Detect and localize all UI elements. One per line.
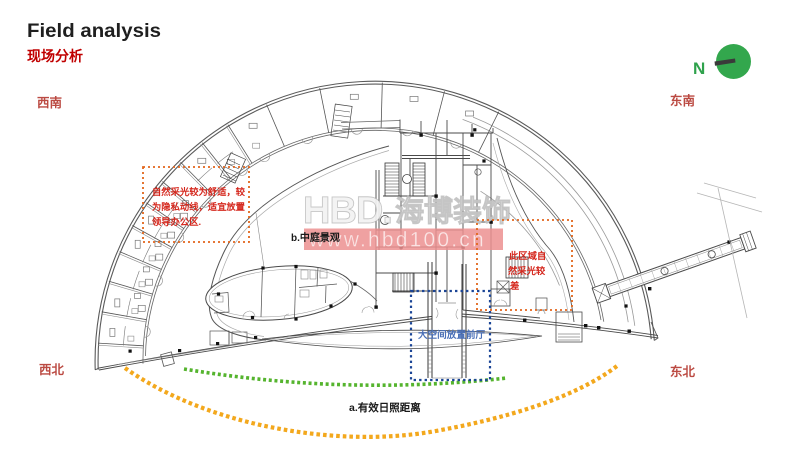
svg-text:东北: 东北 <box>670 364 696 379</box>
svg-text:a.有效日照距离: a.有效日照距离 <box>349 401 421 414</box>
svg-text:西南: 西南 <box>37 95 63 110</box>
svg-text:东南: 东南 <box>670 93 696 108</box>
svg-text:然采光较: 然采光较 <box>508 265 546 276</box>
svg-text:领导办公区.: 领导办公区. <box>152 216 201 227</box>
svg-text:差: 差 <box>510 280 519 291</box>
svg-text:西北: 西北 <box>39 362 65 377</box>
svg-text:自然采光较为舒适，较: 自然采光较为舒适，较 <box>152 186 246 197</box>
svg-text:为隐私动线，适宜放置: 为隐私动线，适宜放置 <box>152 201 245 212</box>
svg-text:现场分析: 现场分析 <box>27 48 83 64</box>
svg-text:此区域自: 此区域自 <box>509 250 546 261</box>
svg-text:N: N <box>693 59 705 78</box>
svg-text:海博装饰: 海博装饰 <box>395 195 511 228</box>
svg-text:HBD.: HBD. <box>303 190 392 232</box>
svg-text:大空间放置前厅: 大空间放置前厅 <box>418 329 486 341</box>
svg-text:Field analysis: Field analysis <box>27 20 161 42</box>
svg-text:b.中庭景观: b.中庭景观 <box>291 231 340 244</box>
